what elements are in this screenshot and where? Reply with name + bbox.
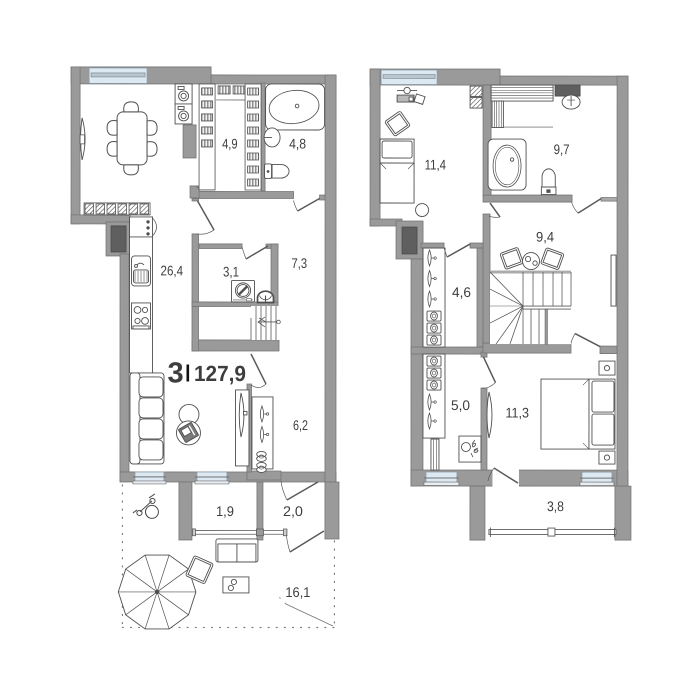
svg-text:4,6: 4,6 <box>452 284 471 300</box>
svg-text:1,9: 1,9 <box>216 503 234 519</box>
svg-text:26,4: 26,4 <box>161 262 184 278</box>
svg-text:11,3: 11,3 <box>505 405 529 421</box>
svg-text:5,0: 5,0 <box>451 397 470 413</box>
svg-text:9,7: 9,7 <box>554 141 570 157</box>
svg-text:4,9: 4,9 <box>222 135 238 151</box>
svg-text:16,1: 16,1 <box>285 584 310 600</box>
svg-text:11,4: 11,4 <box>425 157 447 173</box>
svg-text:3: 3 <box>167 357 183 389</box>
svg-text:3,8: 3,8 <box>547 498 564 514</box>
svg-text:4,8: 4,8 <box>289 135 306 151</box>
svg-text:3,1: 3,1 <box>223 263 239 279</box>
svg-text:127,9: 127,9 <box>194 361 246 386</box>
svg-text:7,3: 7,3 <box>292 255 308 271</box>
svg-text:9,4: 9,4 <box>536 229 554 245</box>
svg-text:2,0: 2,0 <box>283 503 303 519</box>
svg-text:6,2: 6,2 <box>293 417 308 433</box>
